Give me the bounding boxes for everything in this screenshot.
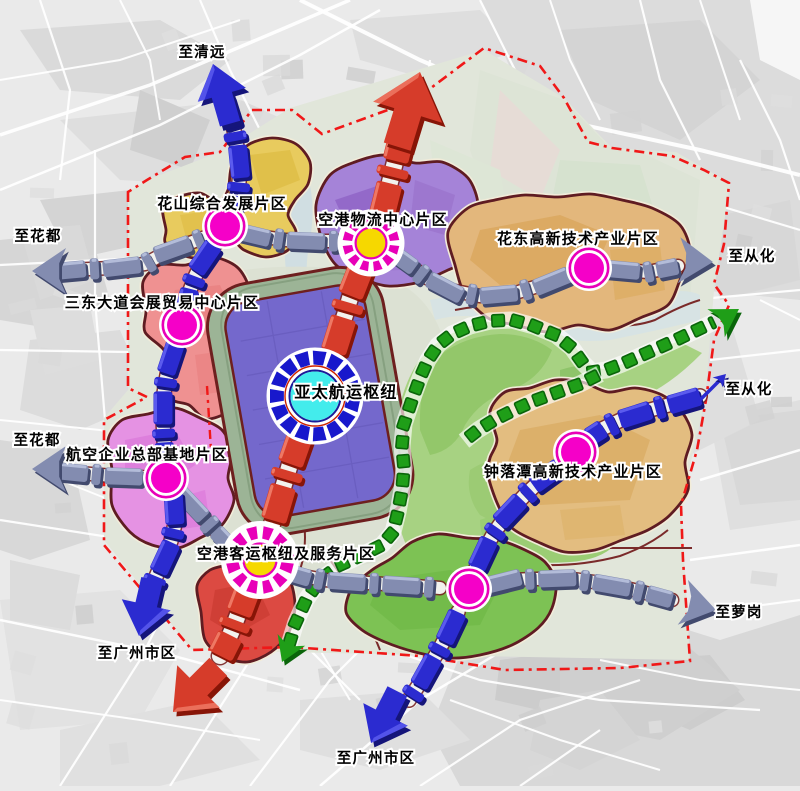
svg-text:至萝岗: 至萝岗 bbox=[715, 603, 762, 621]
svg-text:空港物流中心片区: 空港物流中心片区 bbox=[318, 211, 448, 229]
svg-text:花东高新技术产业片区: 花东高新技术产业片区 bbox=[497, 230, 659, 248]
svg-text:至花都: 至花都 bbox=[13, 431, 60, 449]
svg-text:至花都: 至花都 bbox=[14, 227, 61, 245]
svg-text:至从化: 至从化 bbox=[725, 380, 772, 398]
svg-text:花山综合发展片区: 花山综合发展片区 bbox=[157, 195, 287, 213]
svg-text:三东大道会展贸易中心片区: 三东大道会展贸易中心片区 bbox=[65, 294, 259, 312]
svg-text:钟落潭高新技术产业片区: 钟落潭高新技术产业片区 bbox=[484, 463, 662, 481]
svg-text:至广州市区: 至广州市区 bbox=[337, 749, 416, 767]
svg-text:空港客运枢纽及服务片区: 空港客运枢纽及服务片区 bbox=[197, 545, 375, 563]
svg-text:航空企业总部基地片区: 航空企业总部基地片区 bbox=[66, 446, 228, 464]
svg-text:至从化: 至从化 bbox=[728, 247, 775, 265]
svg-text:亚太航运枢纽: 亚太航运枢纽 bbox=[294, 383, 397, 402]
svg-text:至广州市区: 至广州市区 bbox=[98, 644, 177, 662]
svg-text:至清远: 至清远 bbox=[178, 43, 225, 61]
